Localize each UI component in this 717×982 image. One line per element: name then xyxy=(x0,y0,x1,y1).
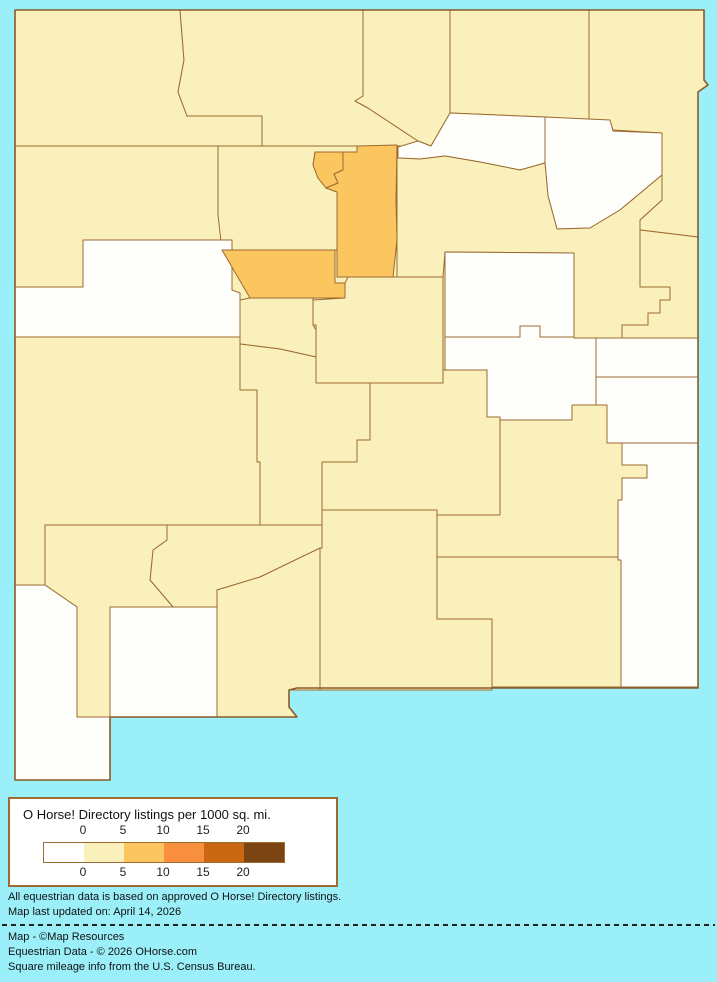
legend-tick-label: 5 xyxy=(108,823,138,837)
county-guadalupe xyxy=(445,252,574,337)
legend-swatch xyxy=(204,843,244,862)
county-lea xyxy=(618,443,698,687)
map-credit: Map - ©Map Resources xyxy=(8,931,124,943)
legend-title: O Horse! Directory listings per 1000 sq.… xyxy=(23,807,271,822)
legend-swatch xyxy=(124,843,164,862)
dashed-separator xyxy=(2,924,715,926)
legend-tick-label: 15 xyxy=(188,865,218,879)
legend-tick-label: 10 xyxy=(148,865,178,879)
last-updated-note: Map last updated on: April 14, 2026 xyxy=(8,906,181,918)
legend-tick-label: 0 xyxy=(68,865,98,879)
county-luna xyxy=(110,607,217,717)
map-legend: O Horse! Directory listings per 1000 sq.… xyxy=(8,797,338,887)
legend-tick-label: 0 xyxy=(68,823,98,837)
legend-swatch xyxy=(44,843,84,862)
legend-color-scale xyxy=(43,842,285,863)
data-source-note: All equestrian data is based on approved… xyxy=(8,891,341,903)
legend-tick-label: 20 xyxy=(228,823,258,837)
legend-tick-label: 5 xyxy=(108,865,138,879)
page-background: O Horse! Directory listings per 1000 sq.… xyxy=(0,0,717,982)
county-layer xyxy=(15,10,708,780)
legend-tick-label: 20 xyxy=(228,865,258,879)
county-curry xyxy=(596,338,698,377)
county-roosevelt xyxy=(596,377,698,443)
census-credit: Square mileage info from the U.S. Census… xyxy=(8,961,256,973)
legend-swatch xyxy=(244,843,284,862)
legend-tick-label: 15 xyxy=(188,823,218,837)
county-colfax xyxy=(450,10,589,122)
legend-tick-label: 10 xyxy=(148,823,178,837)
data-credit: Equestrian Data - © 2026 OHorse.com xyxy=(8,946,197,958)
legend-swatch xyxy=(164,843,204,862)
new-mexico-choropleth-map xyxy=(0,0,717,790)
legend-swatch xyxy=(84,843,124,862)
